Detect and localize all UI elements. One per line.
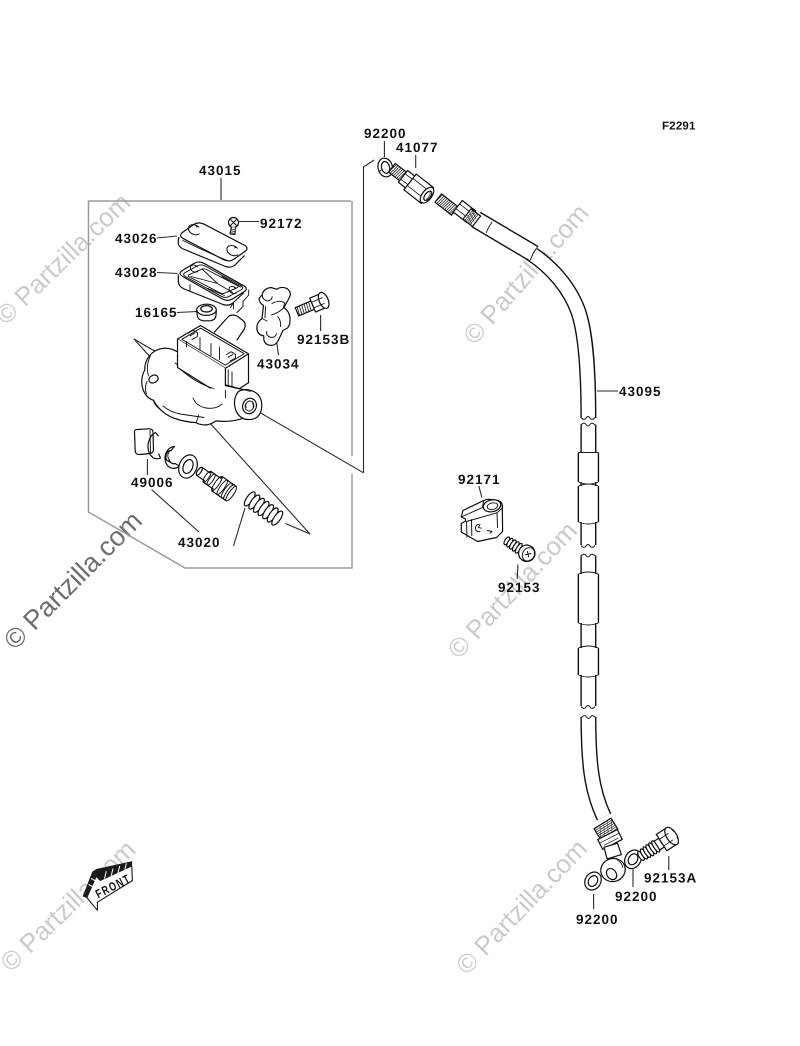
svg-text:92153: 92153	[498, 580, 541, 595]
svg-text:16165: 16165	[135, 305, 178, 320]
svg-text:92153B: 92153B	[297, 332, 350, 347]
svg-text:49006: 49006	[131, 475, 174, 490]
svg-text:F2291: F2291	[662, 121, 696, 133]
svg-text:92172: 92172	[260, 216, 303, 231]
svg-text:41077: 41077	[396, 140, 439, 155]
svg-text:43015: 43015	[199, 163, 242, 178]
svg-text:92153A: 92153A	[644, 871, 697, 886]
svg-text:92171: 92171	[458, 472, 501, 487]
svg-text:43095: 43095	[619, 384, 662, 399]
svg-text:92200: 92200	[364, 126, 407, 141]
svg-text:43020: 43020	[178, 535, 221, 550]
svg-text:92200: 92200	[576, 912, 619, 927]
svg-text:43034: 43034	[257, 357, 300, 372]
svg-text:43028: 43028	[115, 265, 158, 280]
svg-text:92200: 92200	[615, 889, 658, 904]
svg-text:43026: 43026	[115, 231, 158, 246]
